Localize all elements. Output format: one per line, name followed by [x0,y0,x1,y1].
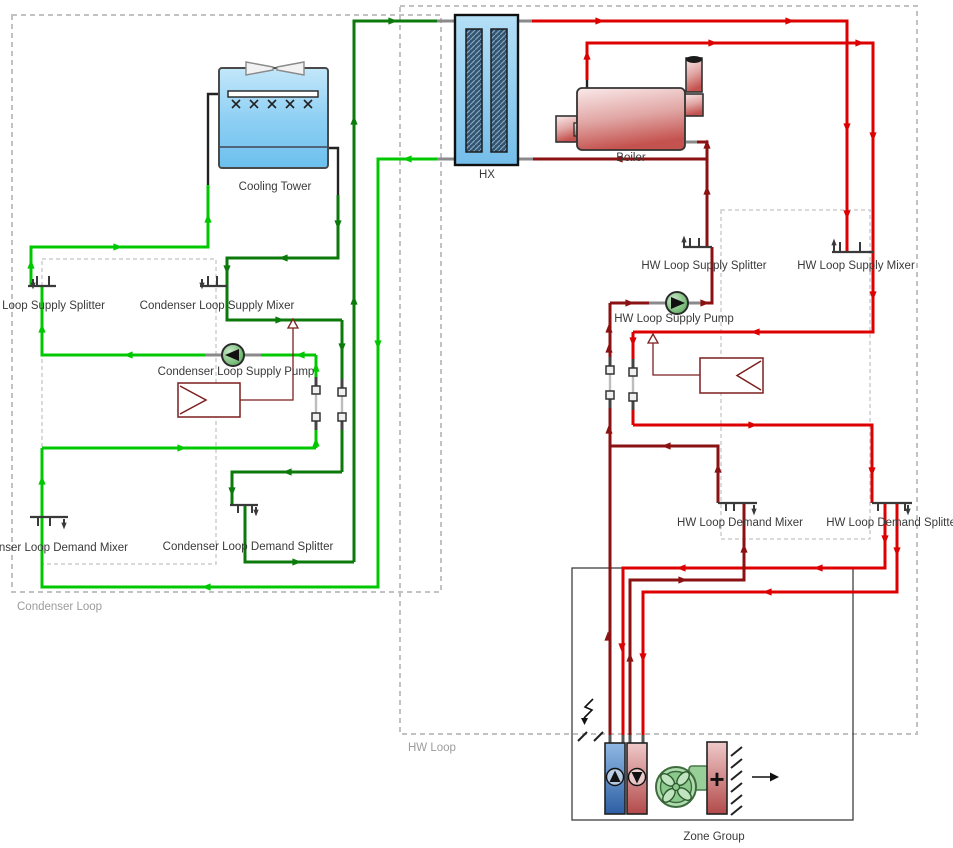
hw-supply-mixer-label: HW Loop Supply Mixer [797,260,915,272]
hw-setpoint-block[interactable] [648,334,763,393]
lightning-icon [584,699,593,718]
flow-arrow-icon [855,39,864,46]
hw-demand-splitter[interactable] [872,503,912,515]
flow-arrow-icon [869,132,876,141]
labels-layer: Cooling TowerHXBoilerCondenser Loop Supp… [0,152,953,843]
pipe[interactable] [354,21,437,562]
hw-demand-mixer[interactable] [718,503,757,515]
plant-loop-diagram: + Cooling TowerHXBoilerCondenser Loop Su… [0,0,953,848]
flow-arrow-icon [388,17,397,24]
flow-arrow-icon [38,475,45,484]
pipe[interactable] [227,195,338,286]
condenser-loop-label: Condenser Loop [17,601,102,613]
flow-arrow-icon [813,564,822,571]
cl-demand-splitter-label: Condenser Loop Demand Splitter [163,541,334,553]
flow-arrow-icon [750,328,759,335]
hw-loop-label: HW Loop [408,742,456,754]
flow-arrow-icon [678,576,687,583]
flow-arrow-icon [113,243,122,250]
flow-tick-icon [751,509,756,516]
flow-arrow-icon [374,340,381,349]
node-connector-icon[interactable] [312,386,320,394]
boiler-label: Boiler [616,152,646,164]
flow-arrow-icon [605,343,612,352]
flow-arrow-icon [740,543,747,552]
flow-arrow-icon [708,39,717,46]
condenser-supply-pump[interactable] [222,344,244,366]
node-connector-icon[interactable] [338,388,346,396]
flow-arrow-icon [700,299,709,306]
spray-bar-icon [228,91,318,97]
flow-arrow-icon [223,265,230,274]
flow-arrow-icon [881,535,888,544]
flow-arrow-icon [282,468,291,475]
node-connector-icon[interactable] [606,366,614,374]
flow-arrow-icon [312,437,319,446]
pipe[interactable] [633,425,872,503]
pipe[interactable] [245,505,354,562]
pipe[interactable] [610,446,718,503]
cooling-tower[interactable] [219,62,328,168]
flow-arrow-icon [350,295,357,304]
flow-arrow-icon [27,259,34,268]
node-connector-icon[interactable] [606,391,614,399]
flow-arrow-icon [292,558,301,565]
pipe-node-connectors[interactable] [312,303,637,472]
pipe[interactable] [623,503,885,736]
airflow-arrow-icon [770,773,779,782]
flow-arrow-icon [278,254,287,261]
flow-arrow-icon [204,213,211,222]
flow-arrow-icon [762,588,771,595]
hw-supply-splitter-label: HW Loop Supply Splitter [641,260,766,272]
flow-arrow-icon [295,351,304,358]
flow-arrow-icon [177,444,186,451]
pipe[interactable] [587,43,873,332]
flow-arrow-icon [228,487,235,496]
hw-demand-splitter-label: HW Loop Demand Splitter [826,517,953,529]
flow-tick-icon [61,523,66,530]
flow-arrow-icon [703,185,710,194]
zone-group-label: Zone Group [683,831,744,843]
chimney-icon [686,58,702,92]
lightning-icon [581,718,588,725]
flow-arrow-icon [334,220,341,229]
setpoint-arrow-icon [648,334,658,343]
pipe[interactable] [31,185,208,286]
flow-arrow-icon [275,316,284,323]
flow-arrow-icon [676,564,685,571]
flow-arrow-icon [595,17,604,24]
flow-arrow-icon [402,155,411,162]
node-connector-icon[interactable] [338,413,346,421]
flow-arrow-icon [629,337,636,346]
pipe[interactable] [610,247,712,303]
hw-demand-mixer-label: HW Loop Demand Mixer [677,517,803,529]
condenser-demand-mixer[interactable] [30,517,68,529]
pipe[interactable] [630,503,744,736]
chimney-cap-icon [686,56,702,63]
hx-heat-exchanger[interactable] [455,15,518,165]
hx-label: HX [479,169,495,181]
flow-arrow-icon [748,421,757,428]
flow-arrow-icon [605,424,612,433]
hx-coil-icon [466,29,482,152]
flow-tick-icon [253,510,258,517]
flow-arrow-icon [618,643,625,652]
node-connector-icon[interactable] [629,368,637,376]
cl-supply-mixer-label: Condenser Loop Supply Mixer [140,300,295,312]
flow-arrow-icon [626,652,633,661]
cl-demand-mixer-label: Condenser Loop Demand Mixer [0,542,128,554]
flow-arrow-icon [201,583,210,590]
hw-supply-pump[interactable] [666,292,688,314]
flow-arrow-icon [583,50,590,59]
hw-supply-pump-label: HW Loop Supply Pump [614,313,734,325]
flow-tick-icon [905,509,910,516]
boiler[interactable] [556,56,703,150]
cl-supply-splitter-label: Condenser Loop Supply Splitter [0,300,105,312]
flow-arrow-icon [605,323,612,332]
flow-tick-icon [831,239,836,246]
hw-supply-mixer[interactable] [831,239,873,252]
flow-arrow-icon [843,123,850,132]
condenser-supply-mixer[interactable] [199,276,227,289]
node-connector-icon[interactable] [629,393,637,401]
flow-arrow-icon [893,547,900,556]
electric-heater-icon: + [709,764,724,794]
hx-coil-icon [491,29,507,152]
flow-arrow-icon [625,299,634,306]
zone-group[interactable]: + [578,699,779,815]
flow-tick-icon [681,236,686,243]
flow-arrow-icon [661,442,670,449]
flow-arrow-icon [785,17,794,24]
pipe[interactable] [208,94,219,185]
pipe[interactable] [232,472,342,505]
flow-arrow-icon [843,210,850,219]
cooling-tower-label: Cooling Tower [239,181,312,193]
flow-arrow-icon [639,653,646,662]
cl-supply-pump-label: Condenser Loop Supply Pump [158,366,315,378]
zone-fan[interactable] [656,766,708,807]
flow-arrow-icon [350,115,357,124]
node-connector-icon[interactable] [312,413,320,421]
flow-arrow-icon [338,343,345,352]
flow-arrow-icon [123,351,132,358]
pipe[interactable] [643,503,897,736]
flow-arrow-icon [38,323,45,332]
pipe[interactable] [328,148,338,195]
